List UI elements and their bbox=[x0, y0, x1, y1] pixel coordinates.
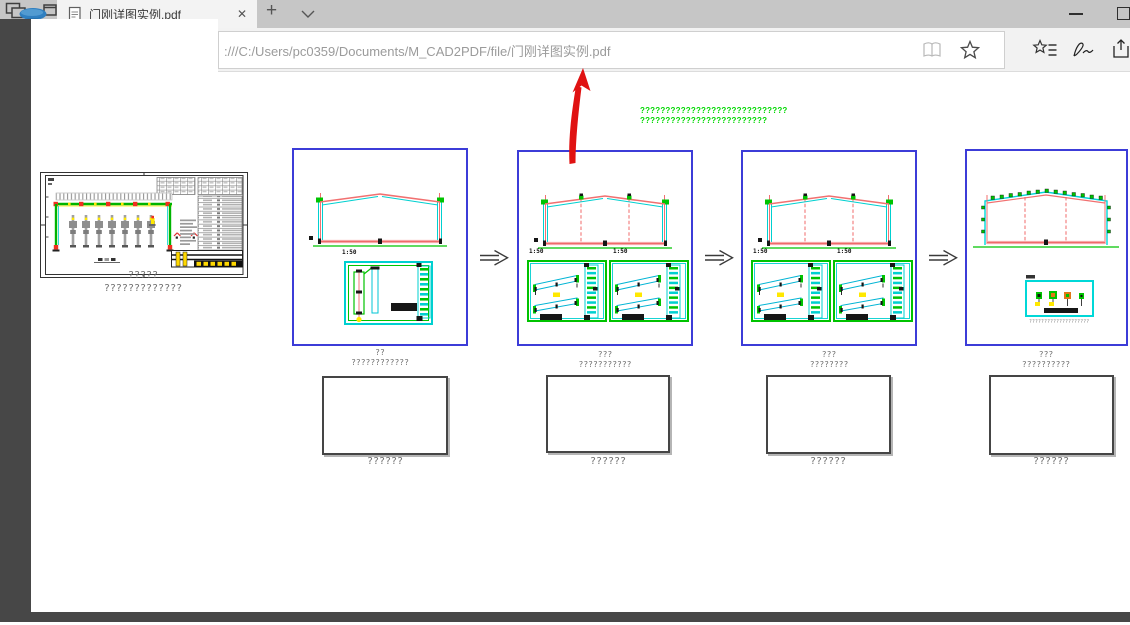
drawing-panel-4 bbox=[965, 149, 1128, 346]
bottom-window-bar bbox=[31, 612, 1130, 622]
scale-label: 1:50 bbox=[342, 249, 356, 256]
scale-label: 1:50 bbox=[753, 248, 767, 255]
share-icon[interactable] bbox=[1110, 37, 1130, 61]
panel-4-subtitle: ?????????? bbox=[986, 360, 1106, 369]
sheet-caption-line2: ????????????? bbox=[83, 283, 203, 294]
sheet-caption-line1: ????? bbox=[83, 270, 203, 281]
panel-1-title: ?? bbox=[320, 348, 440, 357]
placeholder-box-4 bbox=[989, 375, 1114, 455]
green-note-line1: ????????????????????????????? bbox=[640, 106, 788, 115]
favorites-star-icon[interactable] bbox=[960, 40, 980, 60]
green-note-line2: ????????????????????????? bbox=[640, 116, 767, 125]
placeholder-box-3 bbox=[766, 375, 891, 454]
maximize-button[interactable] bbox=[1117, 7, 1130, 20]
edge-browser-window: 门刚详图实例.pdf ✕ + :///C:/Users/pc0359/Docum… bbox=[0, 0, 1130, 625]
url-text: :///C:/Users/pc0359/Documents/M_CAD2PDF/… bbox=[224, 41, 611, 60]
frame-drawing-4 bbox=[967, 151, 1126, 344]
placeholder-caption-2: ?????? bbox=[548, 456, 668, 467]
close-tab-button[interactable]: ✕ bbox=[237, 7, 247, 21]
placeholder-box-2 bbox=[546, 375, 670, 453]
panel-2-title: ??? bbox=[545, 350, 665, 359]
tab-preview-chevron[interactable] bbox=[300, 9, 316, 19]
hub-icon[interactable] bbox=[1032, 38, 1058, 62]
red-annotation-arrow bbox=[548, 60, 596, 168]
panel-3-subtitle: ???????? bbox=[769, 360, 889, 369]
scale-label: 1:50 bbox=[529, 248, 543, 255]
placeholder-caption-1: ?????? bbox=[325, 456, 445, 467]
frame-drawing-2 bbox=[519, 152, 691, 344]
minimize-button[interactable] bbox=[1069, 13, 1083, 15]
panel-2-subtitle: ??????????? bbox=[545, 360, 665, 369]
transform-arrow-2 bbox=[704, 249, 734, 267]
panel-4-inner-caption: ???????????????????? bbox=[1026, 319, 1092, 325]
left-window-strip bbox=[0, 19, 31, 622]
new-tab-button[interactable]: + bbox=[266, 0, 277, 22]
placeholder-caption-4: ?????? bbox=[991, 456, 1111, 467]
scale-label: 1:50 bbox=[837, 248, 851, 255]
panel-4-title: ??? bbox=[986, 350, 1106, 359]
frame-drawing-1 bbox=[294, 150, 466, 344]
panel-3-title: ??? bbox=[769, 350, 889, 359]
transform-arrow-3 bbox=[928, 249, 958, 267]
cad-sheet-thumbnail bbox=[40, 172, 248, 278]
web-note-pen-icon[interactable] bbox=[1070, 37, 1096, 61]
panel-1-subtitle: ???????????? bbox=[320, 358, 440, 367]
address-bar[interactable]: :///C:/Users/pc0359/Documents/M_CAD2PDF/… bbox=[218, 31, 1005, 69]
drawing-panel-1 bbox=[292, 148, 468, 346]
white-overlay bbox=[31, 19, 218, 72]
placeholder-caption-3: ?????? bbox=[768, 456, 888, 467]
reading-view-icon[interactable] bbox=[922, 40, 944, 60]
transform-arrow-1 bbox=[479, 249, 509, 267]
placeholder-box-1 bbox=[322, 376, 448, 455]
scale-label: 1:50 bbox=[613, 248, 627, 255]
frame-drawing-3 bbox=[743, 152, 915, 344]
